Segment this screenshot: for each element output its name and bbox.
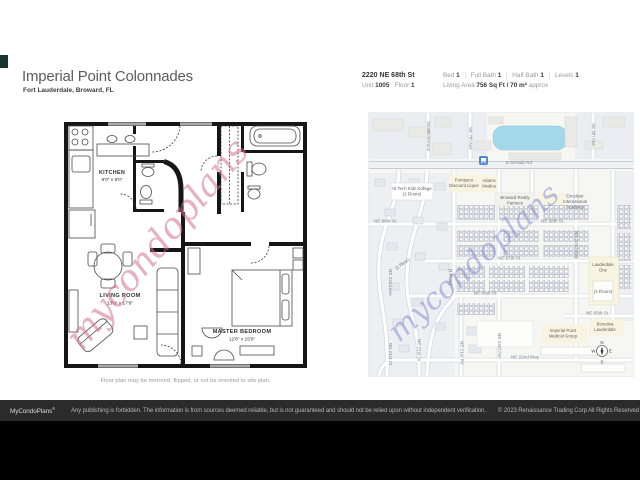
registered-mark: ® [52, 406, 55, 411]
full-bath-stat: Full Bath 1 [466, 72, 508, 79]
poi-adams-2: Medica [482, 183, 496, 188]
poi-lauderdale-one-1: Lauderdale [592, 262, 614, 267]
kitchen-label: KITCHEN [99, 170, 125, 176]
poi-pompano-1: Pompano [455, 178, 474, 183]
poi-kollege-2: (2 Floors) [403, 191, 422, 196]
footer-copyright: © 2023 Renaissance Trading Corp All Righ… [498, 408, 639, 414]
street-ne-21st-ct: NE 21st Ct [388, 343, 393, 366]
footer-brand: MyCondoPlans® [10, 406, 55, 415]
transit-stop-icon [479, 156, 488, 165]
poi-excelsior-3: Academy [566, 204, 585, 209]
street-e-mcnab: E McNab Rd [506, 160, 532, 165]
floor-plan-caption: Floor plan may be mirrored, flipped, or … [64, 378, 307, 384]
poi-pompano-2: Discount Liquor [449, 183, 479, 188]
page-title: Imperial Point Colonnades [22, 68, 193, 85]
living-area-label: Living Area [443, 82, 475, 89]
map-canvas: E McNab Rd SE 8th Terrace SE 7th Ave SE … [369, 113, 633, 376]
address-block: 2220 NE 68th St Unit 1005 Floor 1 [362, 72, 415, 89]
street-se-7th-ave: SE 7th Ave [468, 127, 473, 150]
poi-kollege-1: Hi Tech Kidz Kollege [392, 186, 432, 191]
poi-benetiva-1: Benetiva [597, 322, 614, 327]
poi-excelsior-2: International [563, 199, 587, 204]
living-area-approx: approx [529, 82, 549, 89]
street-ne-66th: NE 66th St [474, 291, 497, 296]
unit-floor-line: Unit 1005 Floor 1 [362, 82, 415, 89]
street-se-9th-ave: SE 9th Ave [591, 123, 596, 146]
footer-disclaimer: Any publishing is forbidden. The informa… [71, 408, 486, 414]
unit-value: 1005 [375, 82, 389, 89]
page-subtitle: Fort Lauderdale, Broward, FL [23, 87, 114, 94]
kitchen-dims: 9'0" x 9'0" [102, 177, 123, 183]
poi-adams-1: Adams [482, 178, 495, 183]
poi-imperial-medical-1: Imperial Point [550, 328, 577, 333]
street-ne-22nd-ave: NE 22nd Ave [388, 269, 393, 296]
floor-plan: KITCHEN 9'0" x 9'0" LIVING ROOM 13'0" x … [64, 120, 307, 372]
street-se-8th-terrace: SE 8th Terrace [426, 121, 431, 152]
bed-bath-line: Bed 1Full Bath 1Half Bath 1Levels 1 [443, 72, 584, 79]
poi-imperial-medical-2: Medical Group [549, 333, 578, 338]
street-ne-21st-dr: NE 21st Dr [417, 339, 422, 362]
compass-s: S [601, 360, 604, 365]
teal-corner-mark [0, 55, 8, 68]
poi-excelsior-1: Excelsior [566, 194, 584, 199]
street-ne-22nd-way: NE 22nd Way [511, 355, 540, 360]
floor-label: Floor [395, 82, 410, 89]
compass-e: E [609, 349, 612, 354]
living-area-metric: / 70 m² [507, 82, 527, 89]
street-ne-23rd-ave: NE 23rd Ave [497, 333, 502, 359]
poi-four-floors: (4 Floors) [594, 289, 613, 294]
brochure-page: Imperial Point Colonnades Fort Lauderdal… [0, 0, 640, 480]
floor-value: 1 [411, 82, 415, 89]
stats-block: Bed 1Full Bath 1Half Bath 1Levels 1 Livi… [443, 72, 584, 89]
compass-n: N [600, 340, 603, 345]
poi-lauderdale-one-2: One [599, 267, 608, 272]
footer-bar: MyCondoPlans® Any publishing is forbidde… [0, 400, 640, 421]
bed-stat: Bed 1 [443, 72, 466, 79]
poi-benetiva-2: Lauderdale [594, 327, 616, 332]
street-ne-21st-rd: NE 21st Rd [460, 341, 465, 365]
levels-stat: Levels 1 [550, 72, 584, 79]
street-ne-22nd-way-v: NE 22nd Way [574, 231, 579, 260]
street-address: 2220 NE 68th St [362, 72, 415, 79]
unit-label: Unit [362, 82, 373, 89]
street-ne-68th-a: NE 68th St [374, 218, 397, 223]
master-bedroom-label: MASTER BEDROOM [213, 329, 272, 335]
master-bedroom-dims: 12'8" x 15'0" [229, 337, 256, 343]
water-pool [493, 126, 567, 150]
living-area-value: 756 Sq Ft [476, 82, 504, 89]
street-ne-65th: NE 65th St [586, 311, 609, 316]
location-map: E McNab Rd SE 8th Terrace SE 7th Ave SE … [368, 112, 634, 377]
bottom-black-strip [0, 421, 640, 480]
half-bath-stat: Half Bath 1 [507, 72, 550, 79]
living-area-line: Living Area 756 Sq Ft / 70 m² approx [443, 82, 584, 89]
